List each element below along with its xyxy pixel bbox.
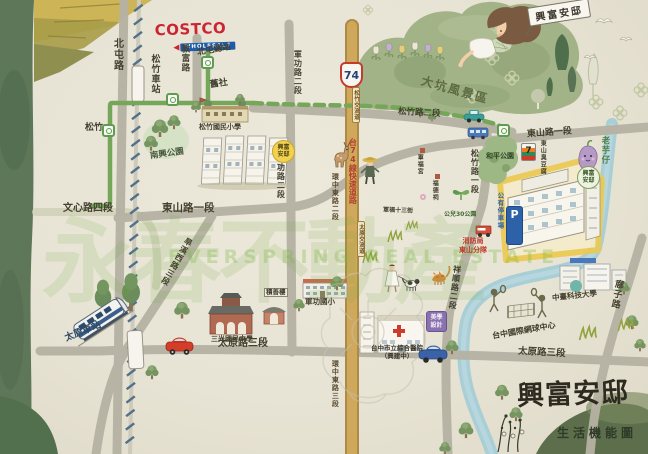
station-label-songzhu-tra: 松竹車站 xyxy=(149,54,158,94)
road-label-huanzhong3: 環中東路三段 xyxy=(331,360,338,408)
place-label-sanguang-jr: 三光國民中學 xyxy=(211,336,253,343)
project-bubble-site-text: 興富安邸 xyxy=(582,171,596,185)
place-label-laoyuzai: 老芋仔 xyxy=(600,136,609,165)
place-label-heping-park: 和平公園 xyxy=(485,152,515,161)
road-label-dongshan-east: 東山路一段 xyxy=(527,127,573,140)
road-label-junggong2-north: 軍功路二段 xyxy=(293,50,301,95)
road-label-beitun: 北屯路 xyxy=(111,38,122,71)
road-label-songzhu2: 松竹路二段 xyxy=(398,108,441,119)
place-label-dakeng: 大坑風景區 xyxy=(420,75,491,106)
ic-songzhu-tag: 松竹交流道 xyxy=(352,87,360,123)
road-label-taiyuan3-east: 太原路三段 xyxy=(518,347,566,359)
place-label-junggong-elem: 軍功國小 xyxy=(305,298,335,306)
road-label-songzhu1: 松竹路一段 xyxy=(470,149,478,194)
map-title: 興富安邸 xyxy=(516,370,629,413)
project-bubble-west: 興富安邸 xyxy=(272,140,295,163)
fire-station-line2: 東山分隊 xyxy=(459,246,487,254)
place-label-stinky-tofu: 東山臭豆腐 xyxy=(539,140,545,175)
expressway-74-name: 台74線快速道路 xyxy=(348,138,356,204)
road-label-hanxi3: 旱溪西路三段 xyxy=(159,236,193,287)
place-label-junfu-temple: 軍福宮 xyxy=(416,154,422,175)
map-labels: COSTCO WHOLESALE 74 台74線快速道路 松竹交流道 太原交流道… xyxy=(0,0,648,454)
hospital-name: 台中市立綜合醫院 xyxy=(371,344,423,352)
station-label-taiyuan-tra: 太原車站 xyxy=(64,320,103,343)
fire-station-line1: 消防局 xyxy=(463,237,484,245)
seven-eleven-icon: 7 xyxy=(521,143,536,161)
place-label-jishan-lou: 積善樓 xyxy=(264,288,288,297)
illustrated-life-map: 永春不動產 EVERSPRING REAL ESTATE COSTCO WHOL… xyxy=(0,0,648,454)
place-label-nanxing-park: 南興公園 xyxy=(150,148,185,162)
place-label-hospital: 台中市立綜合醫院（興建中） xyxy=(364,344,430,361)
road-label-wenxin4: 文心路四段 xyxy=(63,204,113,215)
place-label-parking-lot: 公有停車場 xyxy=(496,192,503,230)
station-label-jiushe: 舊社 xyxy=(209,79,228,91)
station-label-songzhu-metro: 松竹 xyxy=(85,124,103,133)
metro-station-icon-jiushe xyxy=(166,93,179,106)
map-subtitle: 生活機能圖 xyxy=(557,424,637,441)
place-label-fude-temple: 福德祠 xyxy=(431,180,437,201)
design-studio-badge: 美學設計 xyxy=(426,311,447,332)
road-label-buzi: 廍子路 xyxy=(608,278,623,309)
place-label-tennis-center: 台中國際網球中心 xyxy=(492,322,556,341)
road-label-junfu13: 軍福十三街 xyxy=(383,207,413,214)
road-label-huanzhong2: 環中東路二段 xyxy=(331,173,338,221)
metro-station-icon-beitun-terminal xyxy=(201,56,214,69)
ic-taiyuan-tag: 太原交流道 xyxy=(357,221,365,257)
project-ribbon: 興富安邸 xyxy=(527,0,591,27)
project-bubble-site: 興富安邸 xyxy=(577,166,600,189)
road-label-dongshan-west: 東山路一段 xyxy=(162,203,215,214)
metro-station-icon-songzhu xyxy=(102,124,115,137)
parking-sign: P xyxy=(506,206,523,245)
expressway-74-shield: 74 xyxy=(340,62,363,88)
place-label-gonger30: 公兒30公園 xyxy=(444,212,476,218)
project-bubble-west-text: 興富安邸 xyxy=(277,145,291,159)
road-label-dunfu: 敦富路 xyxy=(180,44,189,73)
place-label-fire-station: 消防局東山分隊 xyxy=(459,237,487,255)
costco-chevron-icon xyxy=(173,44,179,50)
road-label-xiangshun2: 祥順路二段 xyxy=(447,265,461,311)
place-label-songzhu-elem: 松竹國民小學 xyxy=(199,124,241,131)
metro-station-icon-east xyxy=(497,124,510,137)
hospital-status: （興建中） xyxy=(381,352,414,360)
place-label-zhongtai-univ: 中臺科技大學 xyxy=(552,290,598,303)
